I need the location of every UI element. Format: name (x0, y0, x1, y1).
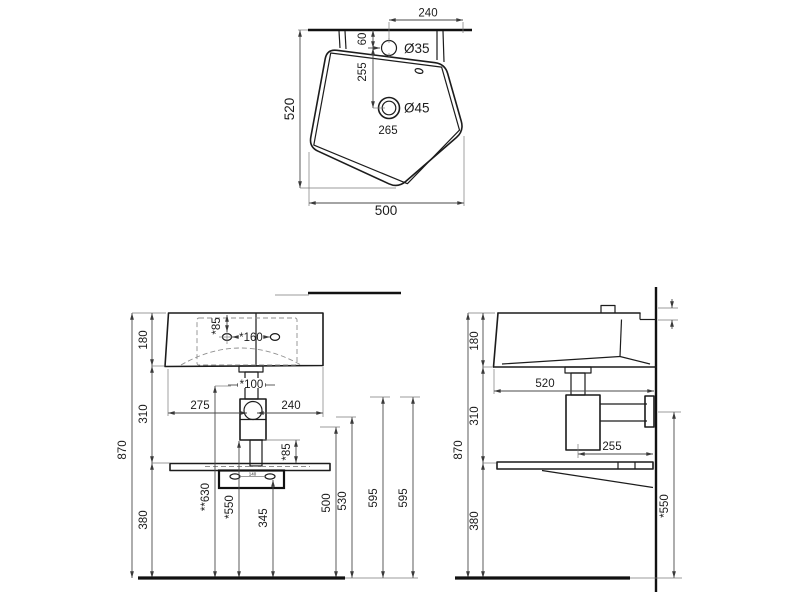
dim-label-310-front: 310 (138, 404, 150, 423)
dim-label-255-top: 255 (357, 62, 369, 81)
dim-label-255-side: 255 (602, 441, 621, 453)
dim-label-380-front: 380 (138, 510, 150, 529)
dim-label-180-front: 180 (138, 330, 150, 349)
tap-hole-right (270, 334, 279, 341)
dim-label-595-b: 595 (398, 488, 410, 507)
dim-label-870-front: 870 (117, 440, 129, 459)
bolt-hole-right (265, 474, 275, 479)
dim-label-870-side: 870 (453, 440, 465, 459)
dim-label-550-front: *550 (224, 495, 236, 519)
dim-label-630: **630 (200, 483, 212, 511)
bolt-hole-left (230, 474, 240, 479)
waste-flange-side (565, 367, 591, 373)
trap-outlet-pipe (250, 440, 262, 466)
dim-label-60: 60 (357, 33, 369, 46)
dim-label-180-side: 180 (469, 331, 481, 350)
dim-label-520-top: 520 (282, 98, 297, 121)
trap-nut (244, 402, 262, 420)
dim-label-dia35: Ø35 (404, 41, 430, 56)
dim-label-85-deck: *85 (211, 317, 223, 334)
dim-label-240-front: 240 (281, 400, 300, 412)
sink-technical-drawing: 240 60 Ø35 255 Ø45 265 520 500 (0, 0, 800, 600)
dim-label-550-side: *550 (659, 494, 671, 518)
dim-label-dia45: Ø45 (404, 101, 430, 116)
dim-label-140: 140 (249, 472, 257, 477)
drawing-page: 240 60 Ø35 255 Ø45 265 520 500 (0, 0, 800, 600)
dim-label-160: *160 (239, 332, 263, 344)
mounting-tab (601, 306, 615, 314)
shelf-side (497, 462, 653, 469)
trap-body-side (566, 395, 600, 450)
dim-label-380-side: 380 (469, 511, 481, 530)
top-view: 240 60 Ø35 255 Ø45 265 520 500 (282, 8, 472, 219)
dim-label-500-top: 500 (375, 203, 398, 218)
waste-flange (239, 366, 263, 372)
waste-pipe-side (571, 373, 585, 395)
side-view: 870 180 310 380 520 255 *550 (453, 287, 682, 592)
dim-label-275: 275 (190, 400, 209, 412)
dim-label-100: *100 (240, 379, 264, 391)
dim-label-310-side: 310 (469, 406, 481, 425)
bowl-hidden (181, 348, 301, 365)
dim-label-85-shelf: *85 (281, 443, 293, 460)
overflow-hole (415, 68, 424, 74)
wall-outlet-flange (645, 396, 654, 427)
shelf-bracket-side (542, 471, 653, 488)
dim-label-520-side: 520 (535, 378, 554, 390)
dim-label-240-top: 240 (418, 8, 437, 20)
dim-label-345: 345 (258, 508, 270, 527)
dim-label-500-front: 500 (321, 493, 333, 512)
dim-label-530: 530 (337, 491, 349, 510)
dim-label-265: 265 (378, 125, 397, 137)
front-view: *85 *160 *100 140 870 180 310 380 (117, 293, 420, 578)
dim-label-595-a: 595 (368, 488, 380, 507)
